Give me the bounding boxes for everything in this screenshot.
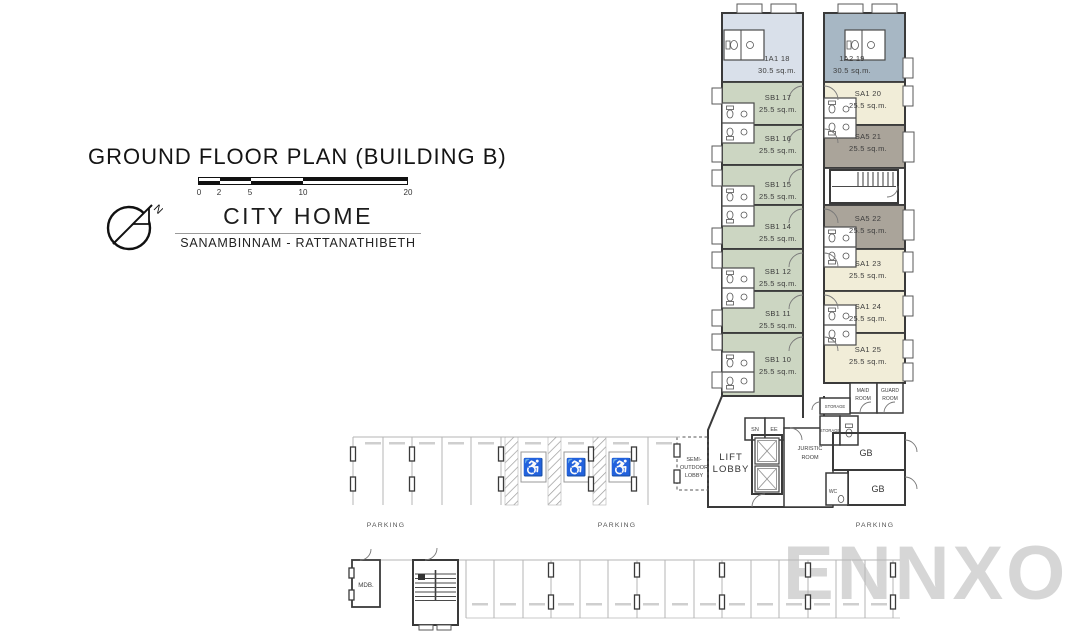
unit-label: SA5 22	[855, 214, 881, 223]
gb-lower-label: GB	[871, 484, 884, 494]
storage-upper-label: STORAGE	[825, 404, 846, 409]
accessible-parking-stall: ♿	[521, 452, 546, 482]
wheelchair-icon: ♿	[523, 457, 544, 477]
unit-area: 25.5 sq.m.	[759, 105, 797, 114]
juristic-label-1: JURISTIC	[798, 446, 823, 452]
unit-area: 25.5 sq.m.	[849, 314, 887, 323]
wc-label: WC	[829, 489, 838, 495]
semi-outdoor-label-2: OUTDOOR	[680, 465, 708, 471]
unit-label: SA5 21	[855, 132, 881, 141]
parking-label-1: PARKING	[367, 522, 406, 529]
unit-label: SA1 25	[855, 345, 881, 354]
unit-label: SA1 24	[855, 302, 881, 311]
unit-area: 25.5 sq.m.	[849, 144, 887, 153]
unit-label: SB1 12	[765, 267, 791, 276]
unit-area: 25.5 sq.m.	[759, 279, 797, 288]
lift-lobby-label-2: LOBBY	[713, 464, 750, 475]
unit-area: 30.5 sq.m.	[758, 66, 796, 75]
lift-lobby-label-1: LIFT	[719, 452, 743, 463]
unit-area: 25.5 sq.m.	[759, 321, 797, 330]
unit-area: 25.5 sq.m.	[849, 101, 887, 110]
floor-plan-page: GROUND FLOOR PLAN (BUILDING B) 0 2 5 10 …	[0, 0, 1080, 640]
exterior-stairs-icon	[413, 548, 458, 630]
parking-label-2: PARKING	[598, 522, 637, 529]
guard-label-1: GUARD	[881, 388, 899, 394]
tower-right-units: 1A2 19 30.5 sq.m. SA1 20 25.5 sq.m. SA5 …	[824, 4, 914, 383]
lift-shafts-icon	[752, 435, 782, 494]
maid-label-2: ROOM	[855, 396, 871, 402]
parking-row-bottom: MDB.	[349, 548, 900, 630]
lobby-wing: SN EE LIFT LOBBY JURISTIC ROOM	[674, 383, 917, 507]
unit-label: 1A1 18	[764, 54, 790, 63]
balcony-sa5-21	[903, 132, 914, 162]
small-wc-room	[840, 416, 858, 445]
unit-label: SB1 17	[765, 93, 791, 102]
unit-label: SB1 11	[765, 309, 791, 318]
unit-area: 30.5 sq.m.	[833, 66, 871, 75]
balcony-sa5-22	[903, 210, 914, 240]
tower-left-units: 1A1 18 30.5 sq.m. SB1 17 25.5 sq.m. SB1 …	[712, 4, 803, 396]
ee-label: EE	[770, 427, 778, 433]
maid-label-1: MAID	[857, 388, 870, 394]
unit-area: 25.5 sq.m.	[759, 192, 797, 201]
unit-label: SB1 10	[765, 355, 791, 364]
unit-label: SA1 20	[855, 89, 881, 98]
unit-area: 25.5 sq.m.	[759, 146, 797, 155]
hatched-strip	[593, 437, 606, 505]
wheelchair-icon: ♿	[566, 457, 587, 477]
unit-area: 25.5 sq.m.	[759, 367, 797, 376]
hatched-strip	[548, 437, 561, 505]
gb-upper-label: GB	[859, 448, 872, 458]
semi-outdoor-label-1: SEMI-	[686, 457, 701, 463]
semi-outdoor-label-3: LOBBY	[685, 473, 704, 479]
juristic-label-2: ROOM	[801, 455, 819, 461]
parking-row-middle: ♿ ♿ ♿	[351, 437, 681, 505]
unit-area: 25.5 sq.m.	[849, 226, 887, 235]
floor-plan-drawing: 1A1 18 30.5 sq.m. SB1 17 25.5 sq.m. SB1 …	[0, 0, 1080, 640]
unit-label: SA1 23	[855, 259, 881, 268]
guard-label-2: ROOM	[882, 396, 898, 402]
unit-area: 25.5 sq.m.	[849, 271, 887, 280]
accessible-parking-stall: ♿	[564, 452, 589, 482]
unit-area: 25.5 sq.m.	[849, 357, 887, 366]
semi-outdoor-lobby: SEMI- OUTDOOR LOBBY	[674, 437, 708, 490]
unit-label: SB1 15	[765, 180, 791, 189]
wheelchair-icon: ♿	[611, 457, 632, 477]
mdb-room: MDB.	[349, 549, 380, 607]
hatched-strip	[505, 437, 518, 505]
parking-label-3: PARKING	[856, 522, 895, 529]
unit-area: 25.5 sq.m.	[759, 234, 797, 243]
unit-label: SB1 16	[765, 134, 791, 143]
unit-label: SB1 14	[765, 222, 791, 231]
sn-label: SN	[751, 427, 759, 433]
unit-label: 1A2 19	[839, 54, 865, 63]
mdb-label: MDB.	[358, 582, 374, 589]
accessible-parking-stall: ♿	[609, 452, 634, 482]
